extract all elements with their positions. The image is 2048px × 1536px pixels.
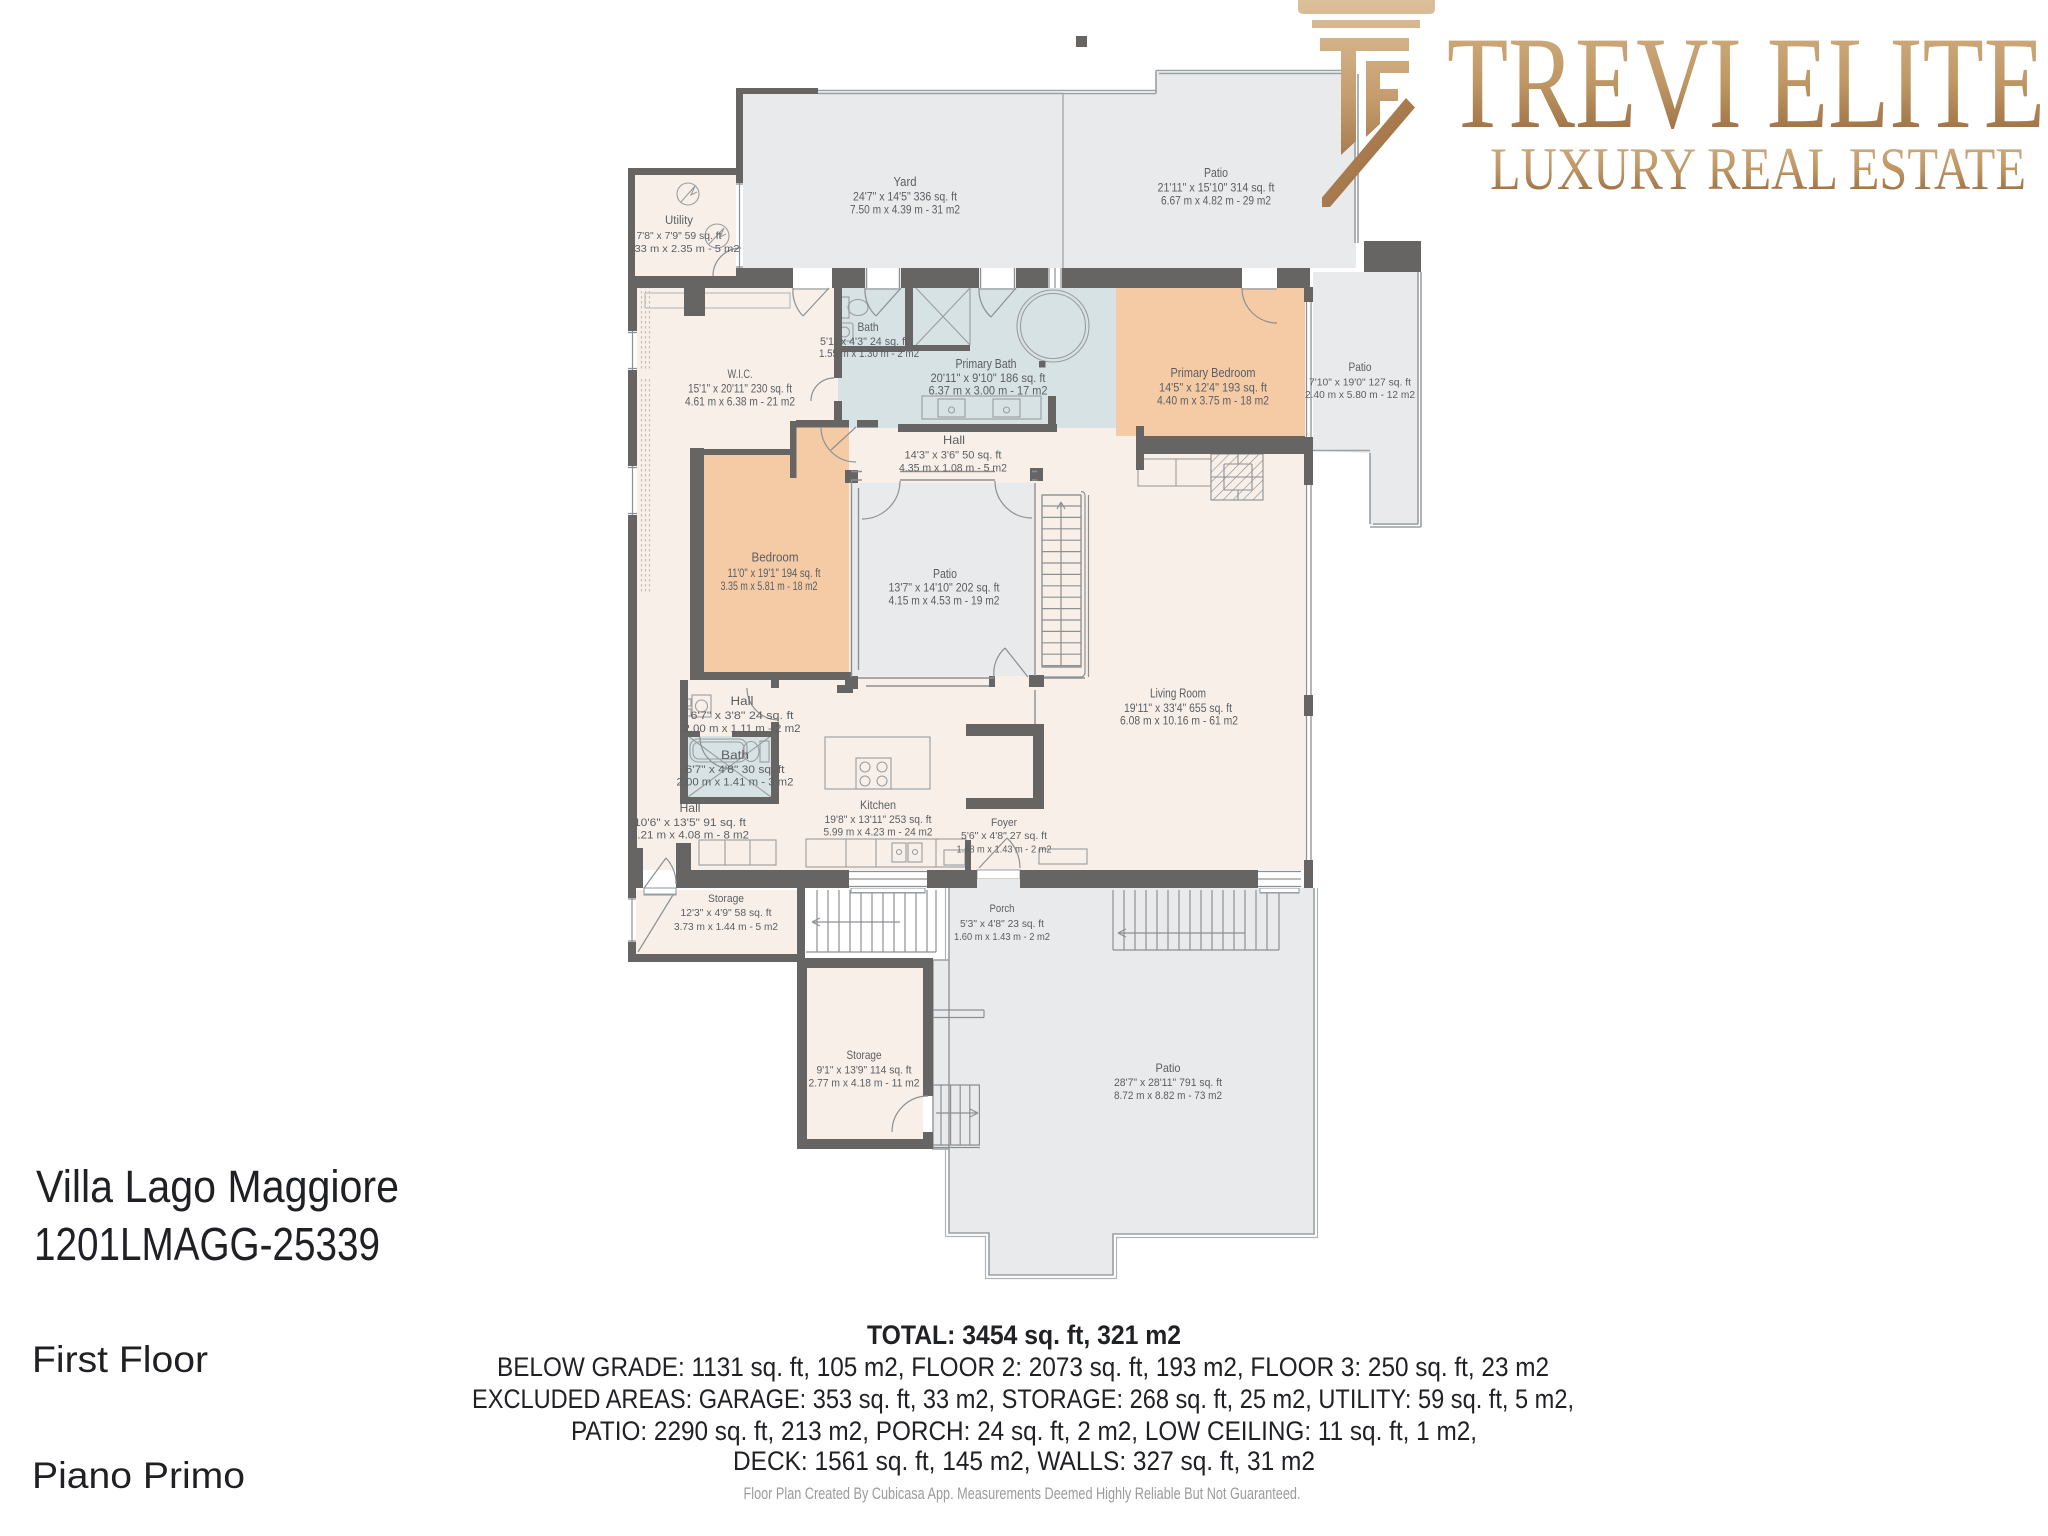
- svg-text:Primary Bath: Primary Bath: [956, 357, 1017, 371]
- svg-text:Patio: Patio: [1156, 1061, 1181, 1075]
- svg-text:13'7" x 14'10" 202 sq. ft: 13'7" x 14'10" 202 sq. ft: [889, 583, 1001, 595]
- svg-text:TREVI ELITE: TREVI ELITE: [1447, 9, 2045, 156]
- svg-text:1.68 m x 1.43 m - 2 m2: 1.68 m x 1.43 m - 2 m2: [957, 845, 1052, 856]
- svg-text:Bath: Bath: [858, 320, 879, 334]
- svg-text:20'11" x 9'10" 186 sq. ft: 20'11" x 9'10" 186 sq. ft: [931, 373, 1047, 385]
- svg-text:5'1" x 4'3" 24 sq. ft: 5'1" x 4'3" 24 sq. ft: [820, 336, 908, 348]
- svg-text:11'0" x 19'1" 194 sq. ft: 11'0" x 19'1" 194 sq. ft: [728, 568, 822, 580]
- svg-text:5.99 m x 4.23 m - 24 m2: 5.99 m x 4.23 m - 24 m2: [824, 827, 933, 839]
- svg-text:EXCLUDED AREAS: GARAGE: 353 sq: EXCLUDED AREAS: GARAGE: 353 sq. ft, 33 m…: [472, 1384, 1574, 1414]
- svg-text:Patio: Patio: [1349, 362, 1372, 374]
- svg-text:1.60 m x 1.43 m - 2 m2: 1.60 m x 1.43 m - 2 m2: [954, 932, 1050, 943]
- svg-text:19'8" x 13'11" 253 sq. ft: 19'8" x 13'11" 253 sq. ft: [825, 814, 932, 826]
- svg-text:8.72 m x 8.82 m - 73 m2: 8.72 m x 8.82 m - 73 m2: [1114, 1090, 1222, 1102]
- svg-text:First Floor: First Floor: [32, 1339, 208, 1380]
- svg-text:33 m x 2.35 m - 5 m2: 33 m x 2.35 m - 5 m2: [635, 243, 740, 255]
- svg-text:2.77 m x 4.18 m - 11 m2: 2.77 m x 4.18 m - 11 m2: [809, 1078, 920, 1090]
- svg-text:Patio: Patio: [933, 567, 957, 581]
- svg-text:2.00 m x 1.41 m - 3 m2: 2.00 m x 1.41 m - 3 m2: [677, 777, 794, 789]
- svg-text:DECK: 1561 sq. ft, 145 m2, WAL: DECK: 1561 sq. ft, 145 m2, WALLS: 327 sq…: [733, 1446, 1315, 1476]
- svg-text:Villa Lago Maggiore: Villa Lago Maggiore: [36, 1161, 399, 1212]
- svg-text:4.61 m x 6.38 m - 21 m2: 4.61 m x 6.38 m - 21 m2: [685, 397, 795, 409]
- svg-text:3.35 m x 5.81 m - 18 m2: 3.35 m x 5.81 m - 18 m2: [721, 581, 818, 593]
- svg-text:Porch: Porch: [990, 903, 1015, 915]
- svg-text:Kitchen: Kitchen: [860, 798, 896, 812]
- svg-text:6.67 m x 4.82 m - 29 m2: 6.67 m x 4.82 m - 29 m2: [1161, 196, 1271, 208]
- svg-text:Patio: Patio: [1204, 166, 1228, 180]
- svg-text:3.73 m x 1.44 m - 5 m2: 3.73 m x 1.44 m - 5 m2: [674, 922, 778, 933]
- svg-text:19'11" x 33'4" 655 sq. ft: 19'11" x 33'4" 655 sq. ft: [1124, 703, 1233, 715]
- svg-text:6'7" x 4'8" 30 sq. ft: 6'7" x 4'8" 30 sq. ft: [686, 764, 785, 776]
- svg-text:Hall: Hall: [731, 696, 754, 708]
- svg-text:W.I.C.: W.I.C.: [728, 367, 753, 381]
- svg-text:15'1" x 20'11" 230 sq. ft: 15'1" x 20'11" 230 sq. ft: [688, 384, 793, 396]
- svg-text:Storage: Storage: [847, 1048, 882, 1062]
- svg-text:4.15 m x 4.53 m - 19 m2: 4.15 m x 4.53 m - 19 m2: [889, 596, 1000, 608]
- svg-text:7'10" x 19'0" 127 sq. ft: 7'10" x 19'0" 127 sq. ft: [1309, 377, 1411, 389]
- svg-text:1201LMAGG-25339: 1201LMAGG-25339: [34, 1218, 380, 1270]
- svg-text:21'11" x 15'10" 314 sq. ft: 21'11" x 15'10" 314 sq. ft: [1158, 183, 1276, 195]
- svg-text:6.08 m x 10.16 m - 61 m2: 6.08 m x 10.16 m - 61 m2: [1120, 716, 1238, 728]
- svg-text:6.37 m x 3.00 m - 17 m2: 6.37 m x 3.00 m - 17 m2: [929, 386, 1048, 398]
- svg-text:4.40 m x 3.75 m - 18 m2: 4.40 m x 3.75 m - 18 m2: [1157, 396, 1269, 408]
- svg-text:5'6" x 4'8" 27 sq. ft: 5'6" x 4'8" 27 sq. ft: [961, 831, 1047, 842]
- svg-text:Bath: Bath: [721, 750, 749, 762]
- svg-text:TOTAL: 3454 sq. ft, 321 m2: TOTAL: 3454 sq. ft, 321 m2: [867, 1320, 1181, 1350]
- svg-text:1.55 m x 1.30 m - 2 m2: 1.55 m x 1.30 m - 2 m2: [819, 348, 919, 360]
- svg-text:3.21 m x 4.08 m - 8 m2: 3.21 m x 4.08 m - 8 m2: [631, 830, 749, 842]
- svg-text:28'7" x 28'11" 791 sq. ft: 28'7" x 28'11" 791 sq. ft: [1114, 1077, 1222, 1089]
- svg-text:2.40 m x 5.80 m - 12 m2: 2.40 m x 5.80 m - 12 m2: [1305, 389, 1415, 401]
- svg-text:14'5" x 12'4" 193 sq. ft: 14'5" x 12'4" 193 sq. ft: [1159, 383, 1268, 395]
- svg-text:24'7" x 14'5" 336 sq. ft: 24'7" x 14'5" 336 sq. ft: [853, 192, 958, 204]
- svg-text:Piano Primo: Piano Primo: [32, 1455, 245, 1496]
- svg-text:10'6" x 13'5" 91 sq. ft: 10'6" x 13'5" 91 sq. ft: [634, 817, 746, 829]
- svg-text:Primary Bedroom: Primary Bedroom: [1171, 366, 1256, 380]
- svg-text:12'3" x 4'9" 58 sq. ft: 12'3" x 4'9" 58 sq. ft: [681, 908, 772, 919]
- svg-text:9'1" x 13'9" 114 sq. ft: 9'1" x 13'9" 114 sq. ft: [817, 1065, 912, 1077]
- svg-text:2.00 m x 1.11 m - 2 m2: 2.00 m x 1.11 m - 2 m2: [684, 723, 801, 735]
- svg-text:BELOW GRADE: 1131 sq. ft, 105: BELOW GRADE: 1131 sq. ft, 105 m2, FLOOR …: [497, 1352, 1549, 1382]
- svg-text:PATIO: 2290 sq. ft, 213 m2, PO: PATIO: 2290 sq. ft, 213 m2, PORCH: 24 sq…: [571, 1416, 1477, 1446]
- svg-text:14'3" x 3'6" 50 sq. ft: 14'3" x 3'6" 50 sq. ft: [905, 450, 1002, 462]
- svg-text:Living Room: Living Room: [1150, 686, 1206, 701]
- svg-text:5'3" x 4'8" 23 sq. ft: 5'3" x 4'8" 23 sq. ft: [960, 919, 1044, 930]
- svg-text:Storage: Storage: [708, 893, 744, 905]
- svg-text:7'8" x 7'9" 59 sq. ft: 7'8" x 7'9" 59 sq. ft: [637, 230, 722, 242]
- svg-text:6'7" x 3'8" 24 sq. ft: 6'7" x 3'8" 24 sq. ft: [691, 710, 794, 722]
- svg-text:Utility: Utility: [665, 215, 693, 227]
- svg-text:7.50 m x 4.39 m - 31 m2: 7.50 m x 4.39 m - 31 m2: [850, 205, 960, 217]
- svg-text:Hall: Hall: [943, 433, 965, 447]
- svg-text:Yard: Yard: [894, 175, 917, 189]
- svg-text:Floor Plan Created By Cubicasa: Floor Plan Created By Cubicasa App. Meas…: [744, 1485, 1301, 1503]
- svg-text:Foyer: Foyer: [991, 817, 1017, 829]
- svg-text:Hall: Hall: [680, 801, 701, 815]
- svg-text:4.35 m x 1.08 m - 5 m2: 4.35 m x 1.08 m - 5 m2: [899, 463, 1007, 475]
- svg-text:Bedroom: Bedroom: [752, 551, 799, 565]
- svg-text:LUXURY REAL ESTATE: LUXURY REAL ESTATE: [1490, 136, 2026, 202]
